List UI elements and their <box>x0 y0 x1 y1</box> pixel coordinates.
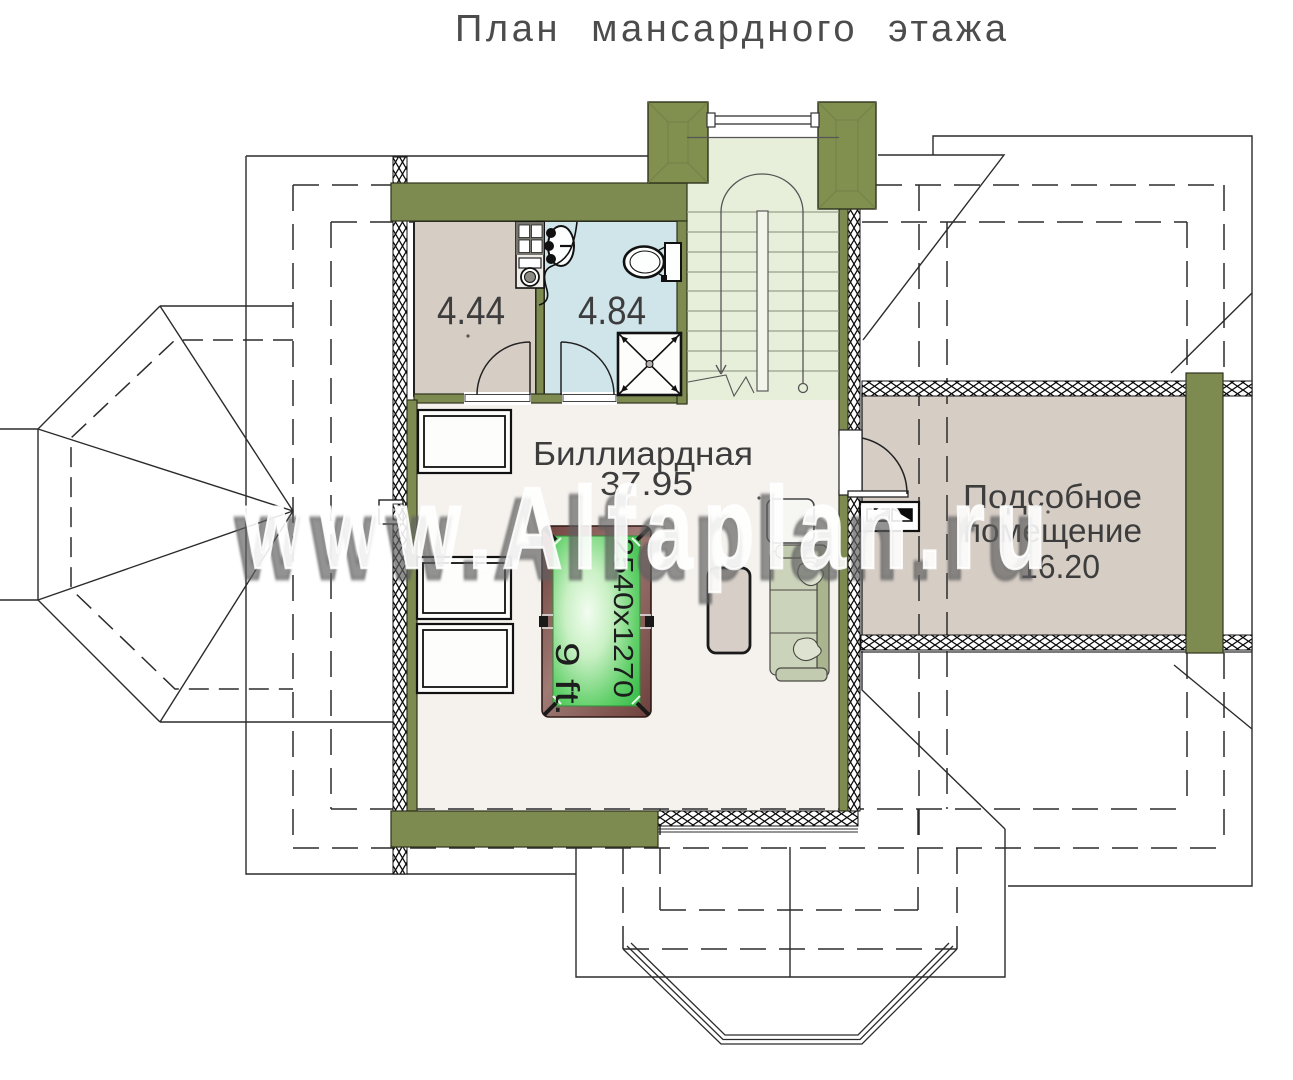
svg-text:www.Alfaplan.ru: www.Alfaplan.ru <box>243 465 1057 594</box>
svg-text:4.44: 4.44 <box>437 289 505 333</box>
svg-text:9 ft.: 9 ft. <box>549 642 586 716</box>
svg-text:План мансардного этажа: План мансардного этажа <box>455 8 1011 50</box>
svg-text:4.84: 4.84 <box>578 289 646 333</box>
